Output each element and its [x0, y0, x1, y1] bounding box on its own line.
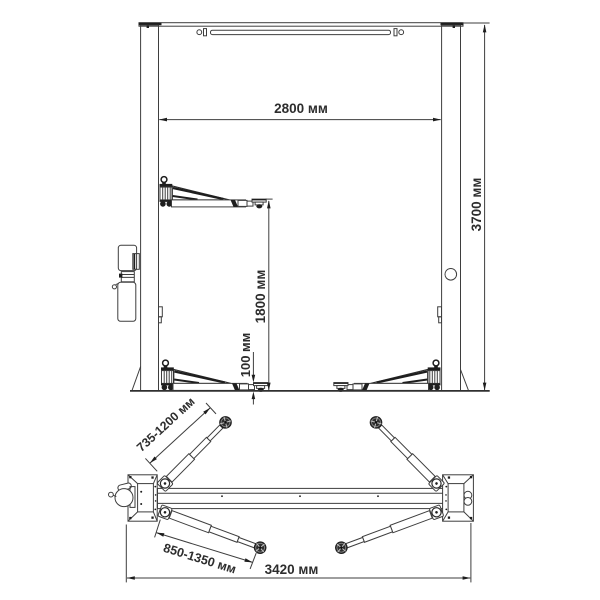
- svg-text:2800 мм: 2800 мм: [274, 101, 328, 116]
- svg-text:100 мм: 100 мм: [238, 333, 253, 378]
- svg-text:3420 мм: 3420 мм: [265, 562, 319, 577]
- svg-text:3700 мм: 3700 мм: [469, 178, 484, 232]
- svg-text:735-1200 мм: 735-1200 мм: [134, 395, 198, 455]
- svg-text:1800 мм: 1800 мм: [253, 270, 268, 324]
